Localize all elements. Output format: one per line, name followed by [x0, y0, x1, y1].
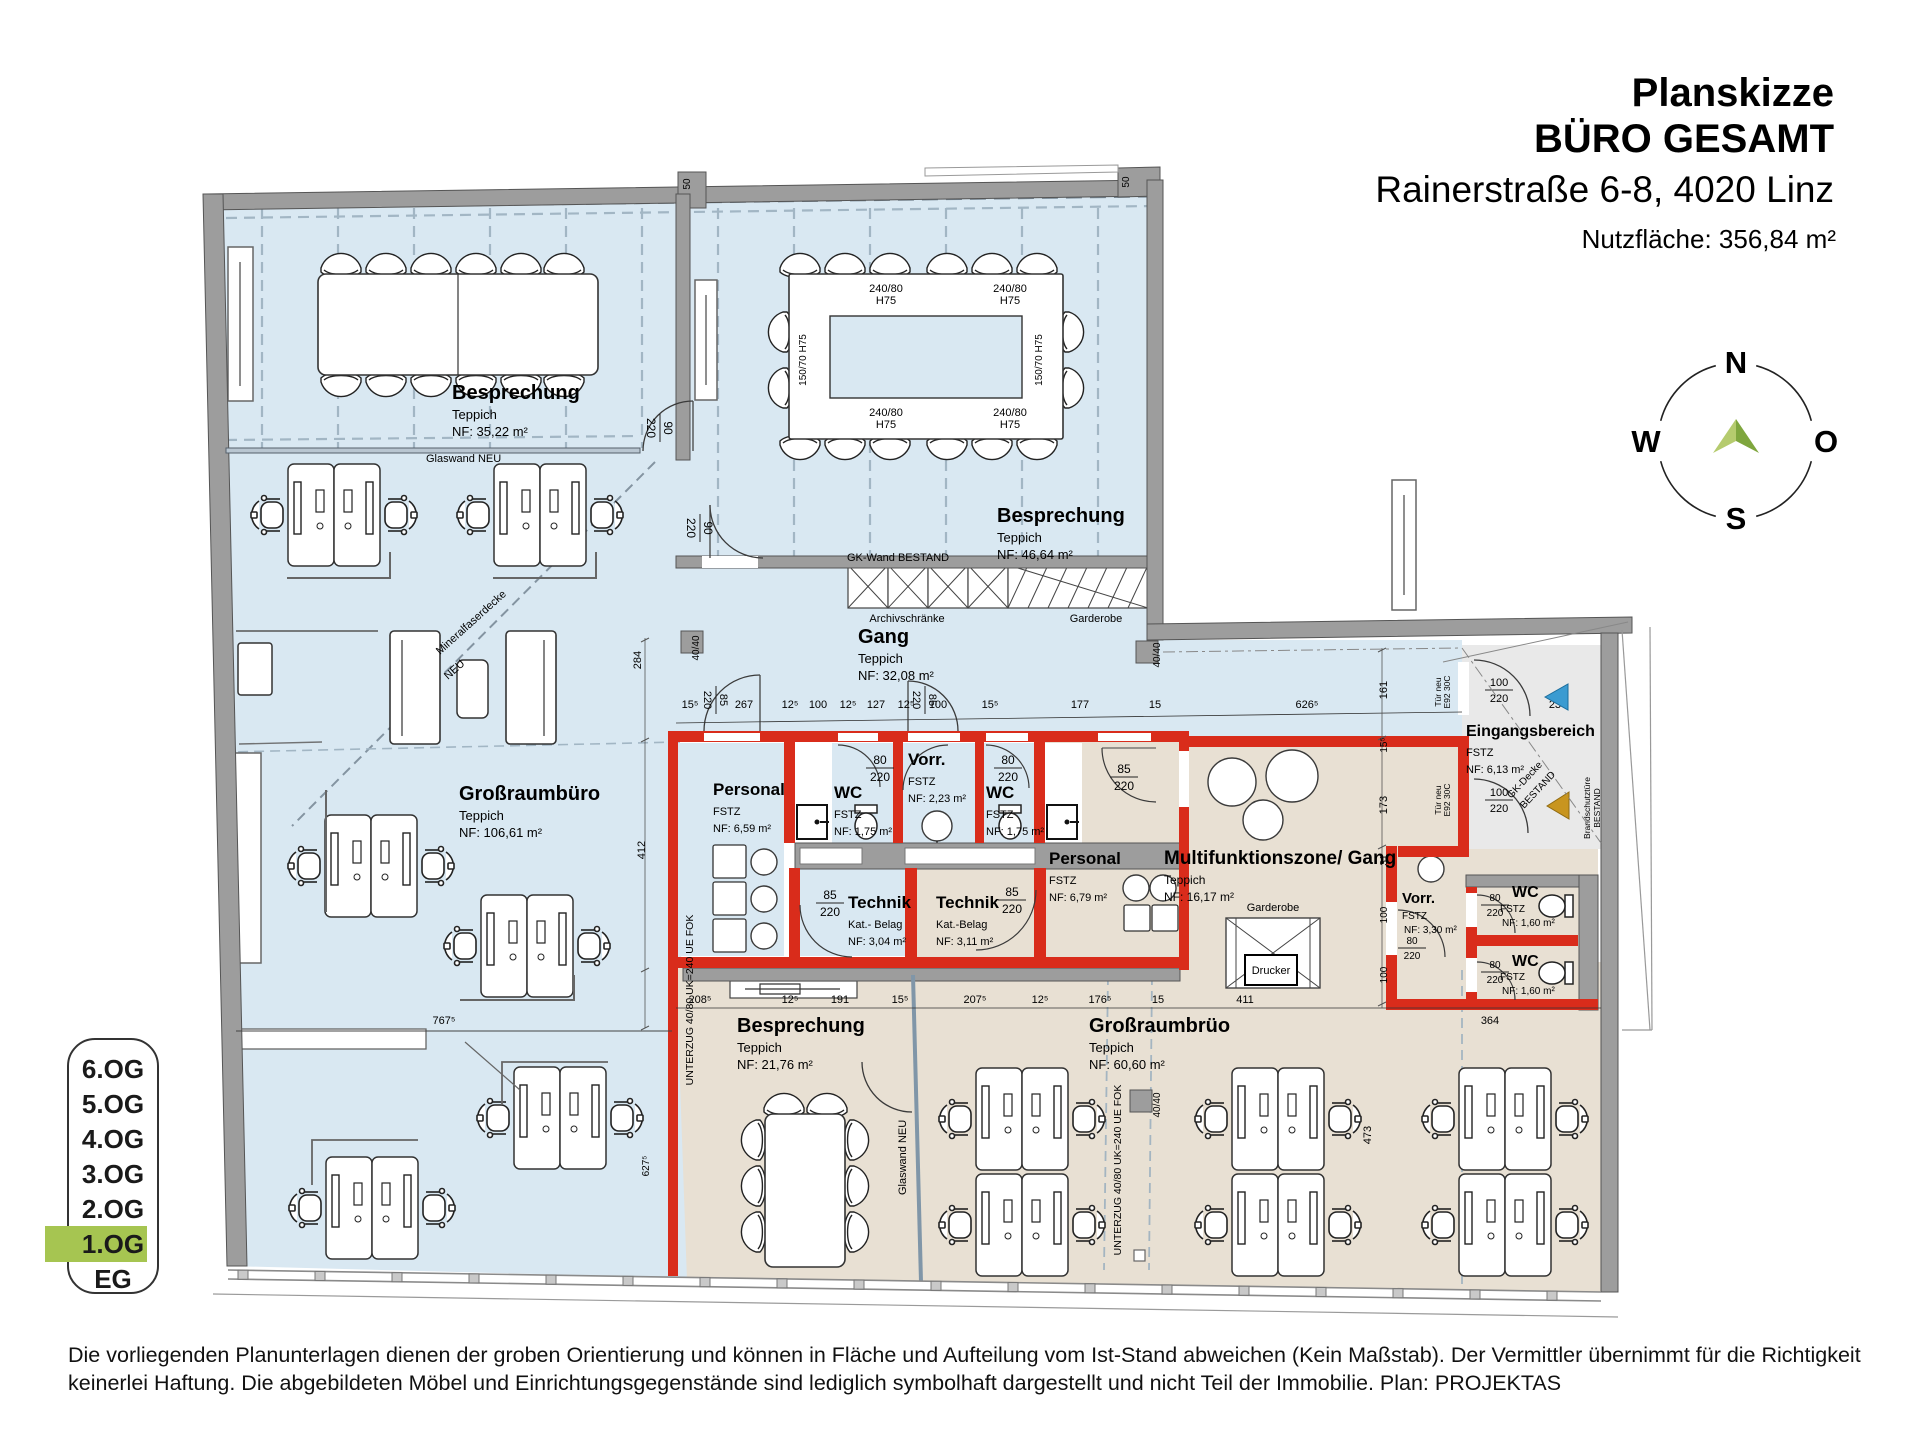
- svg-text:FSTZ: FSTZ: [986, 809, 1014, 821]
- svg-text:FSTZ: FSTZ: [1402, 911, 1427, 922]
- svg-text:85: 85: [1005, 885, 1019, 899]
- svg-text:176⁵: 176⁵: [1089, 994, 1112, 1006]
- svg-text:BESTAND: BESTAND: [1592, 788, 1602, 828]
- svg-text:411: 411: [1236, 994, 1254, 1006]
- svg-text:100: 100: [1379, 906, 1390, 923]
- svg-text:Technik: Technik: [848, 893, 912, 912]
- svg-text:627⁵: 627⁵: [641, 1156, 652, 1177]
- svg-text:2.OG: 2.OG: [82, 1194, 144, 1224]
- svg-text:220: 220: [820, 905, 840, 919]
- svg-text:150/70 H75: 150/70 H75: [1034, 334, 1045, 386]
- svg-text:NF: 6,59 m²: NF: 6,59 m²: [713, 823, 771, 835]
- svg-text:767⁵: 767⁵: [433, 1015, 456, 1027]
- svg-text:80: 80: [1406, 936, 1418, 947]
- svg-text:NF: 2,23 m²: NF: 2,23 m²: [908, 793, 966, 805]
- svg-text:240/80: 240/80: [869, 407, 903, 419]
- svg-text:90: 90: [661, 421, 675, 435]
- svg-text:NF: 3,11 m²: NF: 3,11 m²: [936, 936, 994, 948]
- svg-text:220: 220: [701, 691, 713, 709]
- svg-text:12⁵: 12⁵: [840, 699, 857, 711]
- svg-text:85: 85: [1117, 762, 1131, 776]
- svg-text:15⁵: 15⁵: [982, 699, 999, 711]
- svg-text:220: 220: [1404, 951, 1421, 962]
- svg-text:NF: 1,60 m²: NF: 1,60 m²: [1502, 918, 1555, 929]
- svg-text:UNTERZUG 40/80 UK=240 UE FOK: UNTERZUG 40/80 UK=240 UE FOK: [1112, 1085, 1124, 1256]
- svg-text:240/80: 240/80: [993, 283, 1027, 295]
- svg-text:240/80: 240/80: [993, 407, 1027, 419]
- svg-text:191: 191: [831, 994, 849, 1006]
- svg-text:Multifunktionszone/ Gang: Multifunktionszone/ Gang: [1164, 848, 1396, 869]
- svg-text:364: 364: [1481, 1015, 1499, 1027]
- svg-text:EG: EG: [94, 1264, 132, 1294]
- svg-text:Teppich: Teppich: [1164, 873, 1205, 887]
- svg-text:220: 220: [870, 770, 890, 784]
- svg-text:150/70 H75: 150/70 H75: [798, 334, 809, 386]
- svg-text:Teppich: Teppich: [452, 407, 497, 422]
- svg-text:Besprechung: Besprechung: [997, 505, 1125, 527]
- svg-text:NF: 3,04 m²: NF: 3,04 m²: [848, 936, 906, 948]
- svg-text:Besprechung: Besprechung: [452, 382, 580, 404]
- svg-text:NF: 35,22 m²: NF: 35,22 m²: [452, 424, 529, 439]
- svg-text:W: W: [1631, 424, 1661, 459]
- svg-text:WC: WC: [986, 783, 1014, 802]
- svg-text:Technik: Technik: [936, 893, 1000, 912]
- svg-text:BÜRO GESAMT: BÜRO GESAMT: [1534, 116, 1834, 161]
- svg-text:85: 85: [717, 694, 729, 706]
- svg-text:WC: WC: [834, 783, 862, 802]
- svg-text:Kat.- Belag: Kat.- Belag: [848, 919, 902, 931]
- svg-text:NF: 6,13 m²: NF: 6,13 m²: [1466, 764, 1524, 776]
- svg-text:Teppich: Teppich: [737, 1040, 782, 1055]
- svg-text:626⁵: 626⁵: [1296, 699, 1319, 711]
- svg-text:Vorr.: Vorr.: [908, 750, 945, 769]
- svg-text:NF: 60,60 m²: NF: 60,60 m²: [1089, 1057, 1166, 1072]
- svg-text:12⁵: 12⁵: [1032, 994, 1049, 1006]
- svg-text:Personal: Personal: [1049, 849, 1121, 868]
- svg-text:Teppich: Teppich: [1089, 1040, 1134, 1055]
- svg-text:3.OG: 3.OG: [82, 1159, 144, 1189]
- svg-text:Brandschutztüre: Brandschutztüre: [1582, 777, 1592, 839]
- svg-text:Kat.-Belag: Kat.-Belag: [936, 919, 987, 931]
- svg-text:Garderobe: Garderobe: [1247, 902, 1300, 914]
- svg-text:NF: 32,08 m²: NF: 32,08 m²: [858, 668, 935, 683]
- svg-text:240/80: 240/80: [869, 283, 903, 295]
- svg-text:Archivschränke: Archivschränke: [869, 613, 944, 625]
- svg-text:Glaswand NEU: Glaswand NEU: [897, 1120, 909, 1195]
- svg-text:Glaswand NEU: Glaswand NEU: [426, 453, 501, 465]
- svg-text:12⁵: 12⁵: [782, 699, 799, 711]
- svg-text:100: 100: [1379, 966, 1390, 983]
- svg-text:173: 173: [1378, 796, 1390, 814]
- svg-text:Eingangsbereich: Eingangsbereich: [1466, 723, 1595, 740]
- svg-text:NF: 1,75 m²: NF: 1,75 m²: [834, 826, 892, 838]
- svg-text:N: N: [1725, 345, 1747, 380]
- svg-text:Drucker: Drucker: [1252, 965, 1291, 977]
- svg-text:Teppich: Teppich: [459, 808, 504, 823]
- svg-text:12⁵: 12⁵: [782, 994, 799, 1006]
- svg-text:1.OG: 1.OG: [82, 1229, 144, 1259]
- svg-text:220: 220: [644, 418, 658, 438]
- svg-text:NF: 106,61 m²: NF: 106,61 m²: [459, 825, 543, 840]
- svg-text:FSTZ: FSTZ: [713, 806, 741, 818]
- svg-text:Vorr.: Vorr.: [1402, 890, 1435, 907]
- svg-text:220: 220: [1490, 693, 1508, 705]
- svg-text:40/40: 40/40: [1152, 1092, 1163, 1117]
- svg-text:keinerlei Haftung. Die abgebil: keinerlei Haftung. Die abgebildeten Möbe…: [68, 1371, 1561, 1395]
- svg-text:80: 80: [1489, 893, 1501, 904]
- svg-text:H75: H75: [876, 419, 896, 431]
- svg-text:220: 220: [1490, 803, 1508, 815]
- svg-text:6.OG: 6.OG: [82, 1054, 144, 1084]
- svg-text:85: 85: [823, 888, 837, 902]
- svg-text:5.OG: 5.OG: [82, 1089, 144, 1119]
- svg-text:15⁵: 15⁵: [892, 994, 909, 1006]
- svg-text:284: 284: [632, 651, 644, 669]
- svg-text:FSTZ: FSTZ: [1500, 904, 1525, 915]
- svg-text:GK-Wand BESTAND: GK-Wand BESTAND: [847, 552, 949, 564]
- svg-text:Großraumbrüo: Großraumbrüo: [1089, 1015, 1230, 1037]
- svg-text:S: S: [1726, 501, 1747, 536]
- svg-text:WC: WC: [1512, 953, 1539, 970]
- svg-text:FSTZ: FSTZ: [908, 776, 936, 788]
- svg-text:15⁵: 15⁵: [682, 699, 699, 711]
- svg-text:100: 100: [1490, 677, 1508, 689]
- svg-text:H75: H75: [1000, 419, 1020, 431]
- svg-text:NF: 6,79 m²: NF: 6,79 m²: [1049, 892, 1107, 904]
- svg-text:127: 127: [867, 699, 885, 711]
- svg-text:O: O: [1814, 424, 1838, 459]
- svg-text:Garderobe: Garderobe: [1070, 613, 1123, 625]
- svg-text:220: 220: [910, 691, 922, 709]
- svg-text:NF: 3,30 m²: NF: 3,30 m²: [1404, 925, 1457, 936]
- svg-text:Personal: Personal: [713, 780, 785, 799]
- svg-text:80: 80: [1489, 960, 1501, 971]
- svg-text:E92 30C: E92 30C: [1442, 675, 1452, 708]
- svg-text:Planskizze: Planskizze: [1632, 71, 1834, 115]
- svg-text:412: 412: [636, 841, 648, 859]
- svg-text:220: 220: [1002, 902, 1022, 916]
- svg-text:UNTERZUG 40/80 UK=240 UE FOK: UNTERZUG 40/80 UK=240 UE FOK: [684, 915, 696, 1086]
- svg-text:15: 15: [1152, 994, 1164, 1006]
- svg-text:H75: H75: [876, 295, 896, 307]
- svg-text:FSTZ: FSTZ: [1466, 747, 1494, 759]
- svg-text:80: 80: [873, 753, 887, 767]
- svg-text:50: 50: [682, 178, 693, 190]
- svg-text:177: 177: [1071, 699, 1089, 711]
- svg-text:267: 267: [735, 699, 753, 711]
- svg-text:NF: 1,75 m²: NF: 1,75 m²: [986, 826, 1044, 838]
- svg-text:WC: WC: [1512, 884, 1539, 901]
- svg-text:220: 220: [998, 770, 1018, 784]
- svg-text:473: 473: [1362, 1126, 1374, 1144]
- svg-text:Teppich: Teppich: [997, 530, 1042, 545]
- svg-text:NF: 21,76 m²: NF: 21,76 m²: [737, 1057, 814, 1072]
- svg-text:15: 15: [1149, 699, 1161, 711]
- svg-text:Großraumbüro: Großraumbüro: [459, 783, 600, 805]
- svg-text:161: 161: [1378, 681, 1390, 699]
- svg-text:Besprechung: Besprechung: [737, 1015, 865, 1037]
- svg-text:80: 80: [1001, 753, 1015, 767]
- svg-text:H75: H75: [1000, 295, 1020, 307]
- svg-text:Nutzfläche: 356,84 m²: Nutzfläche: 356,84 m²: [1582, 224, 1837, 254]
- svg-text:NF: 46,64 m²: NF: 46,64 m²: [997, 547, 1074, 562]
- svg-text:Teppich: Teppich: [858, 651, 903, 666]
- svg-text:Gang: Gang: [858, 626, 909, 648]
- svg-text:85: 85: [926, 694, 938, 706]
- svg-text:Rainerstraße 6-8, 4020 Linz: Rainerstraße 6-8, 4020 Linz: [1375, 169, 1834, 210]
- svg-text:4.OG: 4.OG: [82, 1124, 144, 1154]
- svg-text:40/40: 40/40: [1152, 642, 1163, 667]
- svg-text:207⁵: 207⁵: [964, 994, 987, 1006]
- svg-text:50: 50: [1121, 176, 1132, 188]
- svg-text:40/40: 40/40: [691, 635, 702, 660]
- svg-text:E92 30C: E92 30C: [1442, 783, 1452, 816]
- svg-text:220: 220: [684, 518, 698, 538]
- svg-text:90: 90: [701, 521, 715, 535]
- svg-text:FSTZ: FSTZ: [834, 809, 862, 821]
- svg-text:NF: 1,60 m²: NF: 1,60 m²: [1502, 986, 1555, 997]
- svg-text:NF: 16,17 m²: NF: 16,17 m²: [1164, 890, 1234, 904]
- svg-text:220: 220: [1114, 779, 1134, 793]
- svg-text:15⁵: 15⁵: [1379, 737, 1390, 752]
- svg-text:FSTZ: FSTZ: [1049, 875, 1077, 887]
- svg-text:100: 100: [809, 699, 827, 711]
- svg-text:Die vorliegenden Planunterlage: Die vorliegenden Planunterlagen dienen d…: [68, 1343, 1861, 1367]
- svg-text:FSTZ: FSTZ: [1500, 972, 1525, 983]
